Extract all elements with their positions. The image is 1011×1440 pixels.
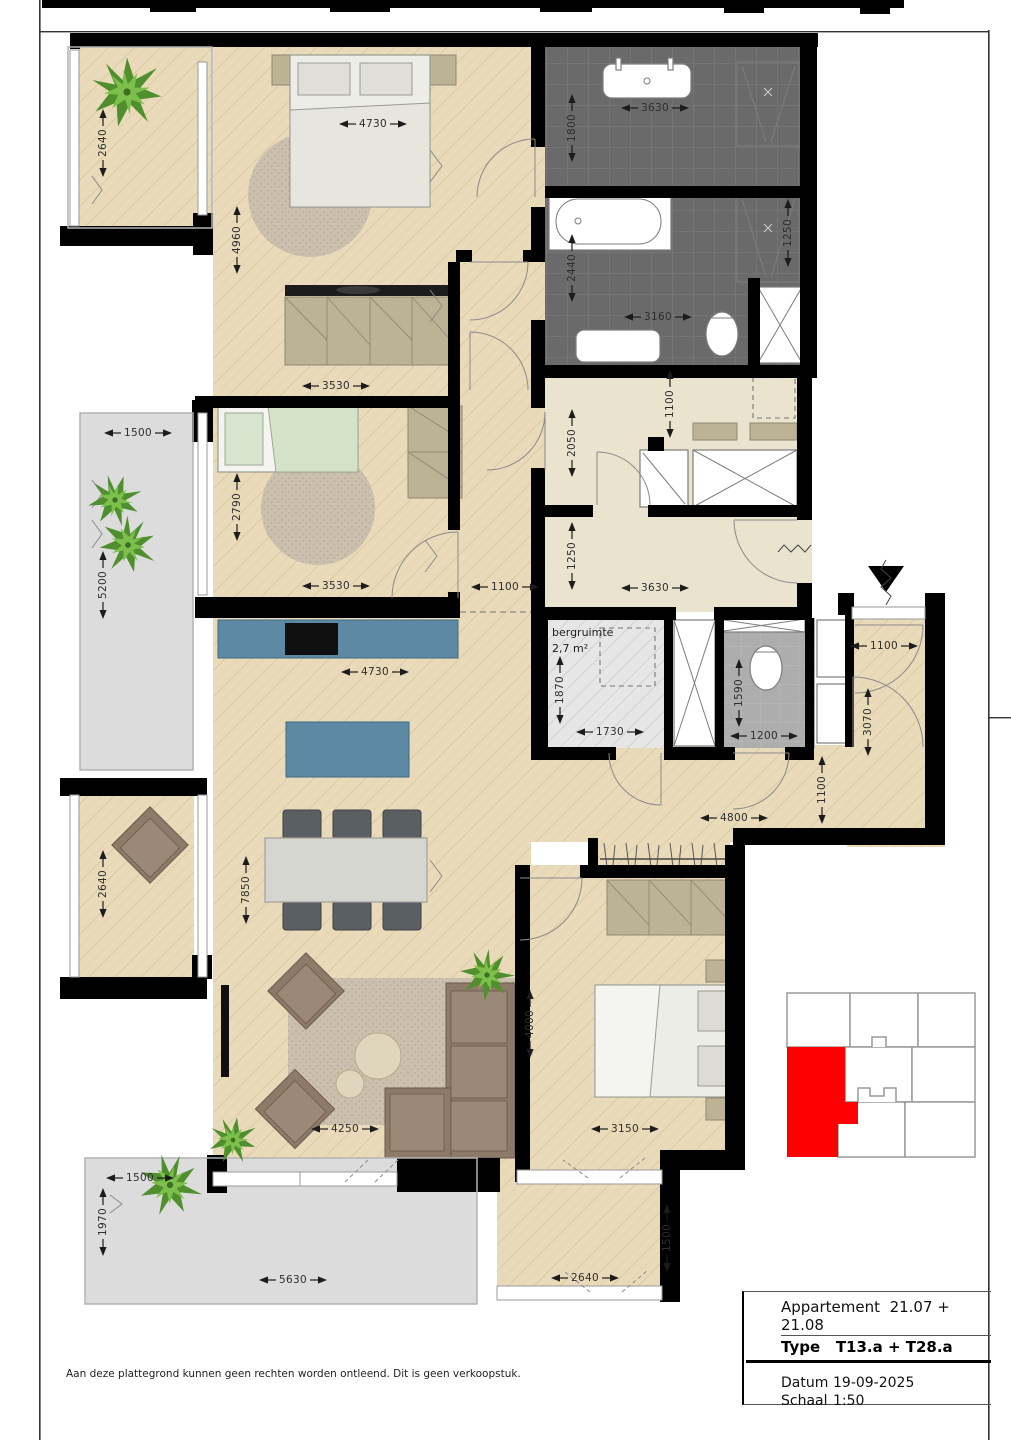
border-tick: [988, 717, 1011, 718]
svg-text:4250: 4250: [331, 1123, 359, 1135]
svg-text:1250: 1250: [566, 542, 578, 570]
double-sink-bathroom-1: [603, 58, 691, 98]
svg-text:3070: 3070: [862, 708, 874, 736]
type-label: Type: [781, 1338, 820, 1356]
window-living-west: [198, 795, 207, 977]
dining-table: [265, 838, 427, 902]
wardrobe-bedroom-1: [285, 297, 455, 365]
svg-text:2640: 2640: [97, 129, 109, 157]
svg-text:5630: 5630: [279, 1274, 307, 1286]
svg-text:2440: 2440: [566, 254, 578, 282]
svg-text:3160: 3160: [644, 311, 672, 323]
title-block: Appartement 21.07 + 21.08 Type T13.a + T…: [742, 1291, 991, 1405]
date-label: Datum: [781, 1375, 833, 1391]
svg-text:1500: 1500: [126, 1172, 154, 1184]
svg-text:4730: 4730: [359, 118, 387, 130]
bathtub-bathroom-2: [549, 193, 671, 250]
svg-text:3630: 3630: [641, 102, 669, 114]
apartment-row: Appartement 21.07 + 21.08: [781, 1298, 991, 1336]
title-block-rule: [746, 1360, 991, 1363]
cooktop: [285, 623, 338, 655]
svg-text:1200: 1200: [750, 730, 778, 742]
scale-value: 1:50: [833, 1393, 864, 1409]
floorplan-page: 2640 4730 4960 3630 1800 2440 1250 3160 …: [0, 0, 1011, 1440]
closet-bedroom-3: [607, 880, 733, 935]
key-plan-core-notch-2: [872, 1037, 886, 1047]
window-balcony-mid: [70, 795, 79, 977]
svg-text:1870: 1870: [554, 676, 566, 704]
sideboard-bedroom-1: [285, 285, 455, 296]
pouf-large: [355, 1033, 401, 1079]
svg-text:3530: 3530: [322, 380, 350, 392]
toilet-bathroom-2: [706, 312, 738, 356]
svg-text:1100: 1100: [664, 390, 676, 418]
entrance-threshold: [852, 607, 925, 619]
svg-text:2640: 2640: [571, 1272, 599, 1284]
svg-text:1970: 1970: [97, 1208, 109, 1236]
entry-hall-floor: [545, 517, 812, 612]
svg-text:7850: 7850: [240, 876, 252, 904]
key-plan: [787, 993, 975, 1157]
scale-label: Schaal: [781, 1393, 833, 1409]
svg-text:3530: 3530: [322, 580, 350, 592]
window-bedroom-1: [198, 62, 207, 215]
svg-text:2050: 2050: [566, 429, 578, 457]
svg-text:2640: 2640: [97, 870, 109, 898]
sink-bathroom-2: [576, 330, 660, 362]
svg-text:4730: 4730: [361, 666, 389, 678]
svg-text:3150: 3150: [611, 1123, 639, 1135]
tech-closet: [674, 620, 715, 746]
svg-text:3630: 3630: [641, 582, 669, 594]
svg-text:1730: 1730: [596, 726, 624, 738]
date-value: 19-09-2025: [833, 1375, 914, 1391]
svg-text:1250: 1250: [782, 219, 794, 247]
cropped-top-strip: [42, 0, 904, 8]
svg-text:1590: 1590: [733, 679, 745, 707]
window-bedroom-2: [198, 413, 207, 595]
svg-text:1100: 1100: [491, 581, 519, 593]
bed-single-bedroom-2: [218, 406, 358, 472]
svg-text:1800: 1800: [566, 114, 578, 142]
svg-text:1100: 1100: [870, 640, 898, 652]
window-balcony-top-left: [70, 50, 79, 226]
cabinet-entry-2: [817, 684, 847, 743]
type-row: Type T13.a + T28.a: [781, 1338, 991, 1356]
svg-text:5200: 5200: [97, 571, 109, 599]
window-extension-south: [497, 1286, 662, 1300]
date-row: Datum19-09-2025: [781, 1375, 991, 1391]
tv-panel: [221, 985, 229, 1077]
floor-plan-svg: 2640 4730 4960 3630 1800 2440 1250 3160 …: [0, 0, 1011, 1440]
washer-bathroom-2: [758, 287, 802, 363]
svg-text:1100: 1100: [816, 776, 828, 804]
key-plan-highlight-1: [787, 1047, 845, 1102]
pouf-small: [336, 1070, 364, 1098]
cabinet-entry-1: [817, 620, 847, 677]
type-value: T13.a + T28.a: [836, 1338, 953, 1356]
svg-text:4800: 4800: [720, 812, 748, 824]
window-living-south: [213, 1172, 397, 1186]
storage-area-text: 2,7 m²: [552, 642, 588, 655]
svg-text:2790: 2790: [231, 493, 243, 521]
scale-row: Schaal1:50: [781, 1393, 991, 1409]
svg-text:1500: 1500: [124, 427, 152, 439]
disclaimer-text: Aan deze plattegrond kunnen geen rechten…: [66, 1368, 521, 1380]
apartment-label: Appartement: [781, 1298, 880, 1316]
svg-text:4000: 4000: [524, 1010, 536, 1038]
svg-text:4960: 4960: [231, 226, 243, 254]
window-bedroom-3-south: [517, 1170, 662, 1184]
storage-label-text: bergruimte: [552, 626, 614, 639]
svg-text:1500: 1500: [661, 1224, 673, 1252]
kitchen-counter: [218, 620, 458, 658]
bed-double-bedroom-1: [272, 55, 456, 207]
kitchen-island: [286, 722, 409, 777]
entrance-triangle-icon: [868, 566, 904, 592]
